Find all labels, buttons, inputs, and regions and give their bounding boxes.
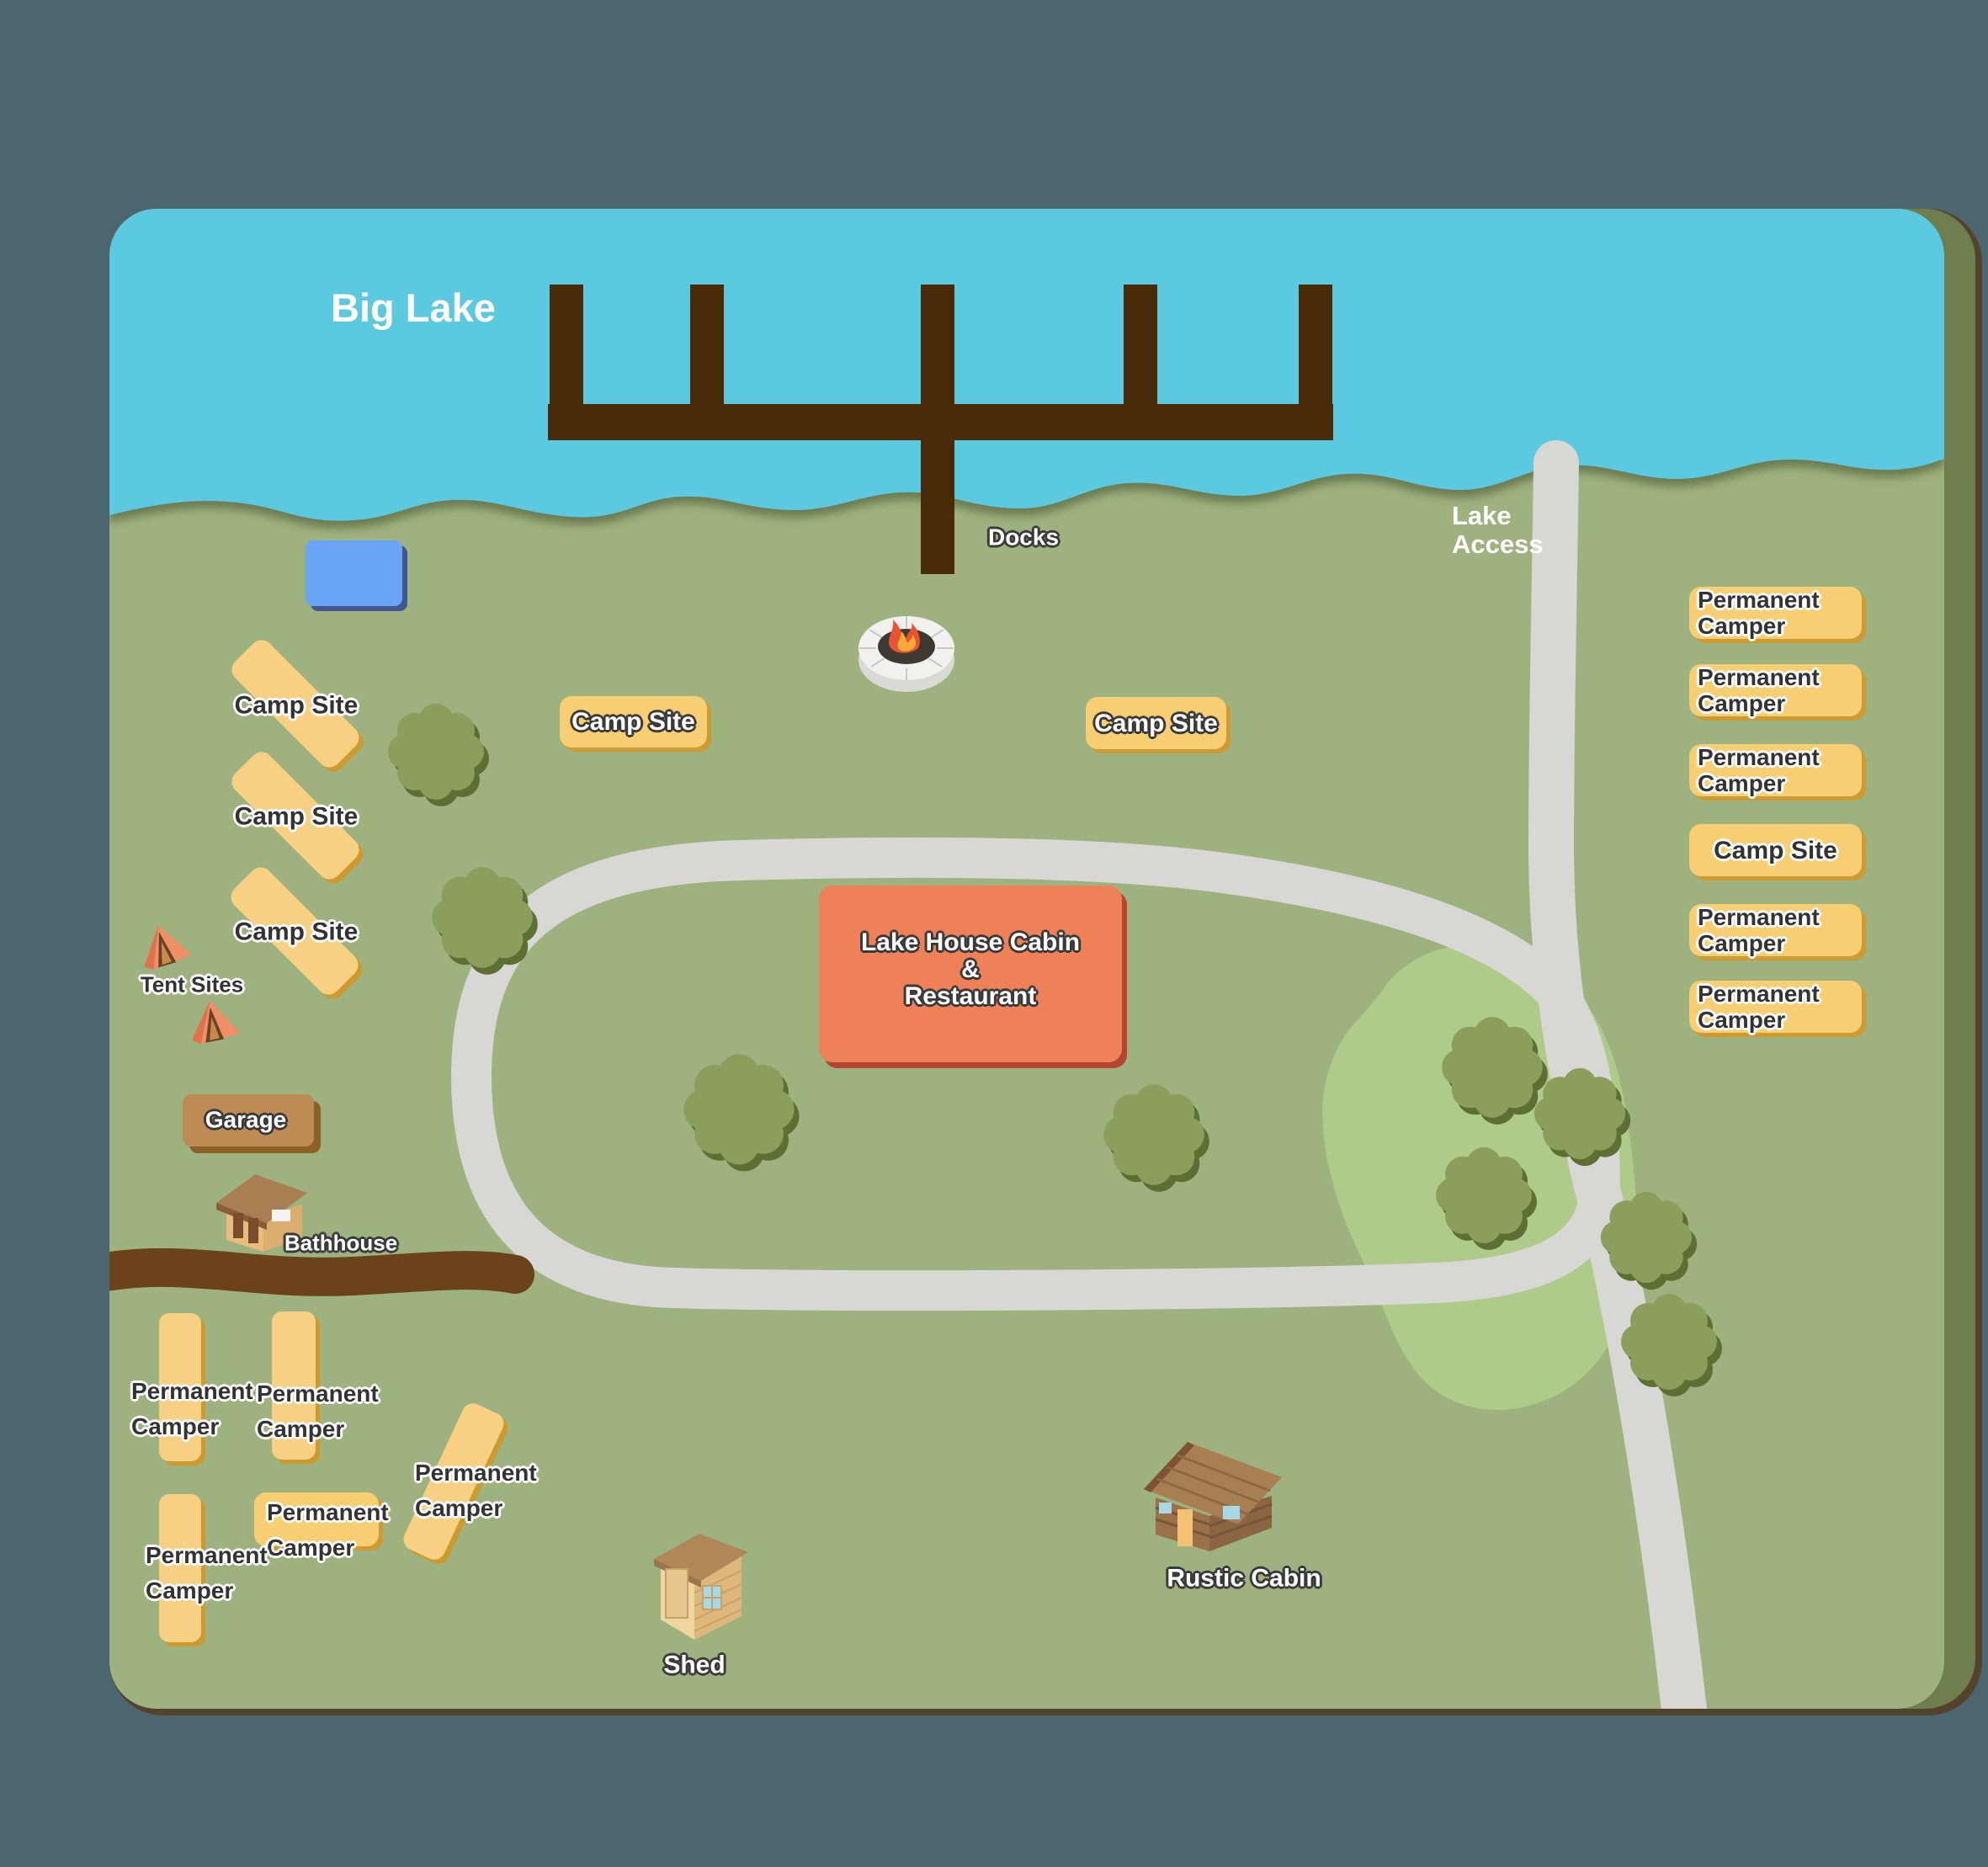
right-badge-5-line2: Camper	[1698, 930, 1785, 956]
bathhouse-label: Bathhouse	[284, 1231, 397, 1256]
right-badge-6: Permanent Camper	[1689, 981, 1862, 1033]
right-badge-3-line1: Permanent	[1698, 744, 1820, 770]
garage-label: Garage	[205, 1108, 287, 1134]
camp-site-pad-label-1: Camp Site	[235, 692, 359, 720]
bottom-left-label-2: Permanent Camper	[257, 1376, 379, 1447]
dirt-road	[101, 1268, 515, 1277]
fire-pit-icon	[858, 616, 954, 692]
camp-site-pad-label-3: Camp Site	[235, 918, 359, 946]
lake-access-label: Lake Access	[1452, 502, 1544, 559]
bottom-left-label-4: Permanent Camper	[267, 1495, 389, 1566]
right-badge-5: Permanent Camper	[1689, 904, 1862, 956]
right-badge-6-line1: Permanent	[1698, 981, 1820, 1007]
right-badge-3: Permanent Camper	[1689, 744, 1862, 796]
rustic-cabin-label: Rustic Cabin	[1167, 1565, 1321, 1593]
right-badge-6-line2: Camper	[1698, 1007, 1785, 1033]
camp-site-badge-left: Camp Site	[560, 696, 707, 747]
lake-house-label: Lake House Cabin & Restaurant	[861, 929, 1080, 1010]
right-badge-5-line1: Permanent	[1698, 904, 1820, 930]
camp-site-badge-right-label: Camp Site	[1094, 710, 1218, 737]
lake-name-label: Big Lake	[331, 286, 496, 330]
right-badge-3-line2: Camper	[1698, 770, 1785, 796]
right-badge-2: Permanent Camper	[1689, 664, 1862, 716]
camp-site-badge-left-label: Camp Site	[571, 708, 695, 736]
bl3-line2: Camper	[415, 1491, 537, 1526]
bottom-left-label-3: Permanent Camper	[415, 1455, 537, 1526]
bl1-line2: Camper	[131, 1409, 253, 1444]
bl1-line1: Permanent	[131, 1374, 253, 1409]
pond	[306, 540, 407, 611]
right-badge-1-line1: Permanent	[1698, 587, 1820, 613]
right-badge-2-line2: Camper	[1698, 690, 1785, 716]
lake	[109, 209, 1944, 521]
bl5-line1: Permanent	[146, 1538, 268, 1573]
campground-map: Big Lake Docks Lake Access Camp Site Cam…	[0, 0, 1988, 1867]
docks-label: Docks	[988, 525, 1059, 551]
bl2-line1: Permanent	[257, 1376, 379, 1412]
bl4-line2: Camper	[267, 1530, 389, 1566]
right-badge-4-label: Camp Site	[1714, 837, 1837, 864]
right-badge-4: Camp Site	[1689, 824, 1862, 876]
shed-label: Shed	[663, 1652, 725, 1679]
lake-access-line1: Lake	[1452, 502, 1544, 530]
lake-access-line2: Access	[1452, 530, 1544, 559]
lake-house-line3: Restaurant	[861, 983, 1080, 1010]
bl4-line1: Permanent	[267, 1495, 389, 1530]
bl5-line2: Camper	[146, 1573, 268, 1609]
right-badge-2-line1: Permanent	[1698, 664, 1820, 690]
camp-site-badge-right: Camp Site	[1086, 697, 1226, 749]
bottom-left-label-5: Permanent Camper	[146, 1538, 268, 1609]
bottom-left-label-1: Permanent Camper	[131, 1374, 253, 1444]
bl2-line2: Camper	[257, 1412, 379, 1447]
bl3-line1: Permanent	[415, 1455, 537, 1491]
lake-house-line2: &	[861, 956, 1080, 983]
lake-house-line1: Lake House Cabin	[861, 929, 1080, 956]
right-badge-1: Permanent Camper	[1689, 587, 1862, 639]
right-badge-1-line2: Camper	[1698, 613, 1785, 639]
camp-site-pad-label-2: Camp Site	[235, 803, 359, 831]
tent-sites-label: Tent Sites	[141, 973, 243, 997]
